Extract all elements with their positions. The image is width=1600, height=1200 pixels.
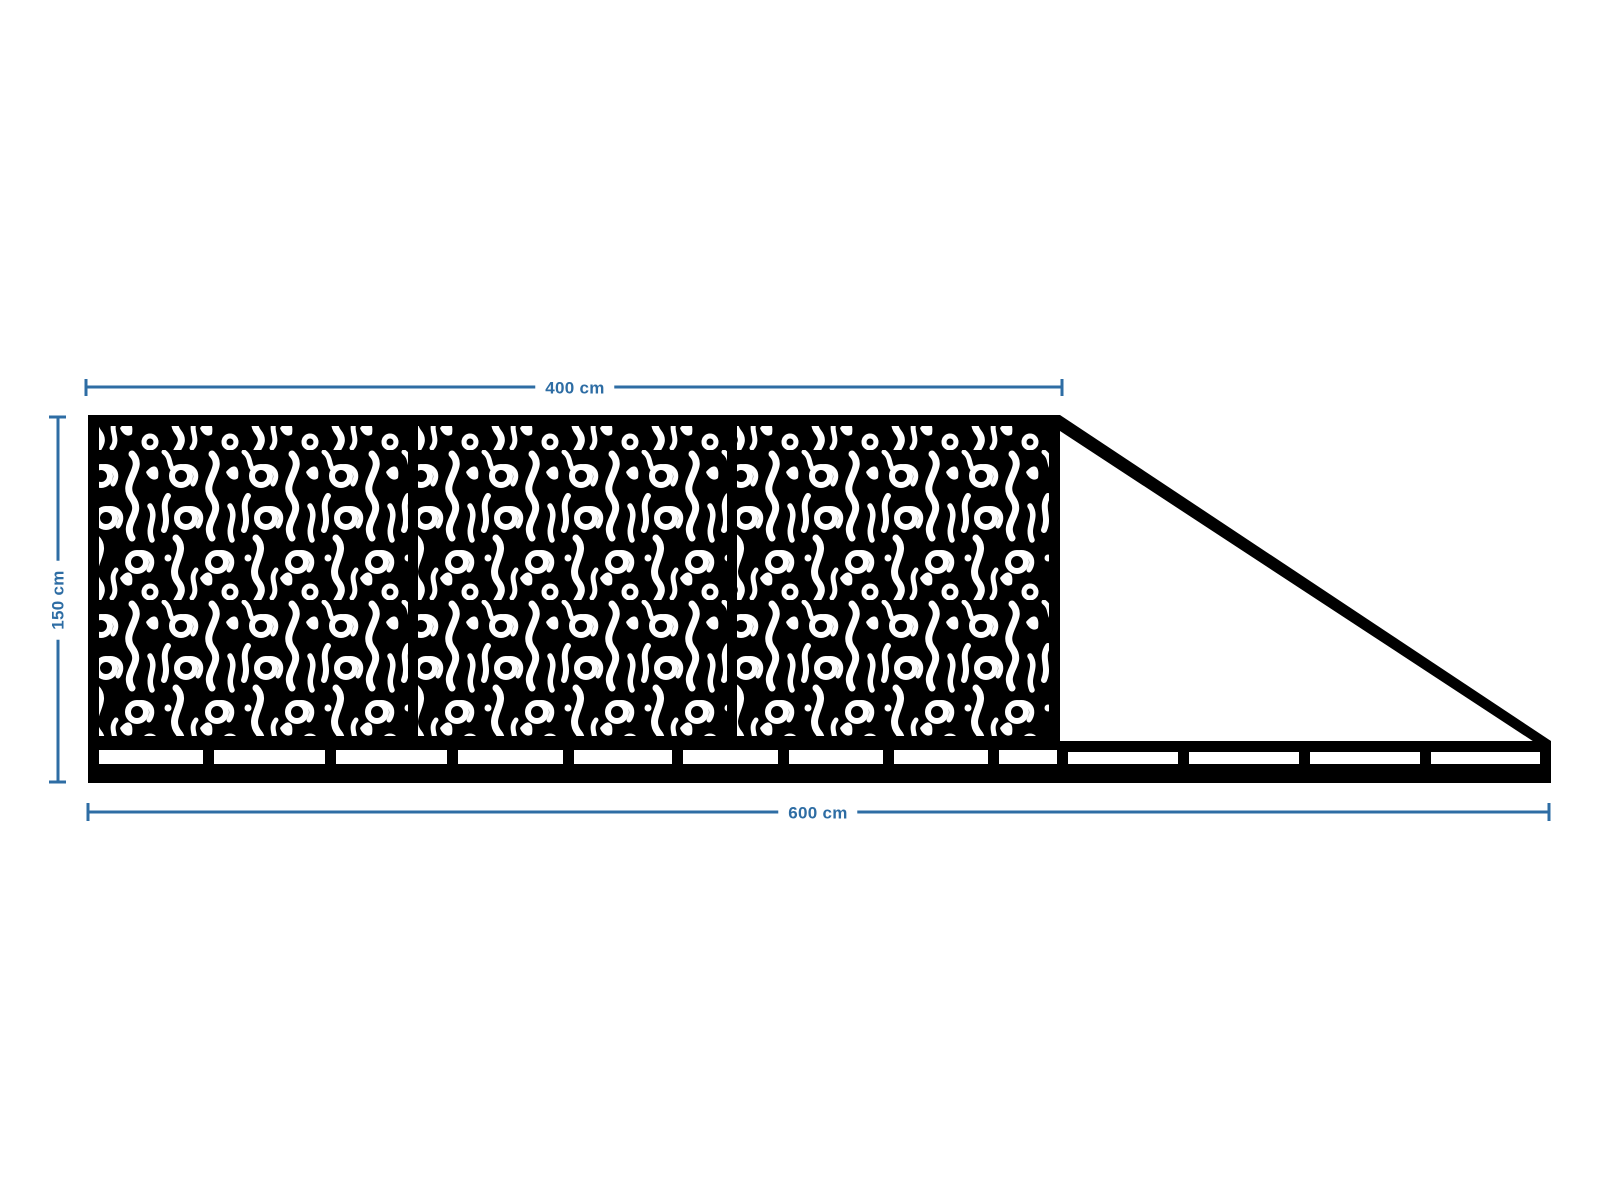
gate-structure [88, 415, 1551, 783]
gate-technical-drawing: 400 cm 150 cm 600 cm [0, 0, 1600, 1200]
bottom-rail [88, 764, 1551, 783]
tail-end-cap [1540, 741, 1551, 783]
ornament-section-2 [418, 426, 727, 736]
ornament-section-3 [737, 426, 1049, 736]
panel-width-label: 400 cm [535, 378, 614, 399]
total-width-label: 600 cm [778, 803, 857, 824]
drawing-svg [0, 0, 1600, 1200]
ornament-section-1 [99, 426, 408, 736]
height-label: 150 cm [48, 560, 69, 639]
diagonal-brace [1060, 415, 1551, 753]
